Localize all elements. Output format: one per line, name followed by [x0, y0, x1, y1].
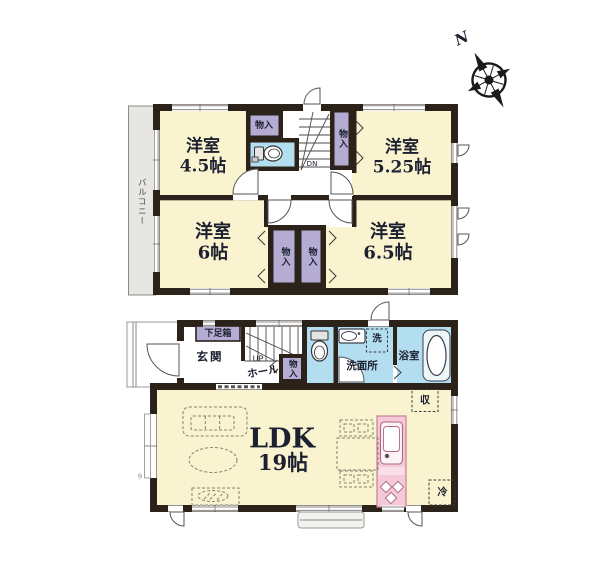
floor2-plan: [129, 88, 470, 295]
floorplan-canvas: N バルコニー 洋室 4.5帖 洋室 5.25帖 洋室 6帖 洋室 6.5帖 物…: [0, 0, 600, 581]
kitchen-counter: [377, 416, 406, 507]
window-arc: [458, 234, 469, 245]
room-6-label: 洋室 6帖: [195, 222, 231, 263]
washroom-label: 洗面所: [346, 360, 378, 372]
room-4-5-label: 洋室 4.5帖: [180, 137, 227, 176]
stairs-down-label: DN: [307, 159, 318, 167]
laundry-label: 洗: [372, 335, 382, 346]
floor1-plan: [127, 302, 458, 528]
shutter-arc: [408, 512, 422, 526]
window-arc: [458, 208, 469, 219]
balcony-label: バルコニー: [137, 178, 146, 226]
fridge-label: 冷: [438, 487, 448, 499]
door-arc: [304, 88, 320, 104]
shutter-arc: [170, 512, 184, 526]
back-door-arc: [371, 302, 389, 320]
dimension-mark: 9: [138, 473, 142, 480]
bathtub-icon: [423, 330, 450, 381]
closet-2f-right-label: 物入: [337, 129, 346, 149]
room-5-25-label: 洋室 5.25帖: [373, 138, 431, 177]
storage-label: 収: [420, 395, 430, 407]
window-arc: [458, 145, 469, 156]
floorplan-drawing: [0, 0, 600, 581]
closet-1f-label: 物入: [288, 360, 297, 379]
entrance-label: 玄関: [197, 350, 224, 363]
toilet-icon-1f: [311, 331, 328, 361]
room-6-5-label: 洋室 6.5帖: [363, 222, 412, 263]
compass-icon: [453, 41, 524, 118]
stairs-up-label: UP: [253, 354, 264, 363]
ldk-size-label: 19帖: [258, 451, 308, 475]
closet-2f-b2-label: 物入: [307, 247, 316, 267]
sink-icon: [339, 329, 365, 343]
toilet-icon-2f: [252, 146, 282, 162]
bathroom-label: 浴室: [399, 350, 420, 362]
closet-2f-b1-label: 物入: [280, 247, 289, 267]
closet-2f-top-label: 物入: [255, 121, 273, 131]
shoe-box-label: 下足箱: [204, 328, 231, 338]
